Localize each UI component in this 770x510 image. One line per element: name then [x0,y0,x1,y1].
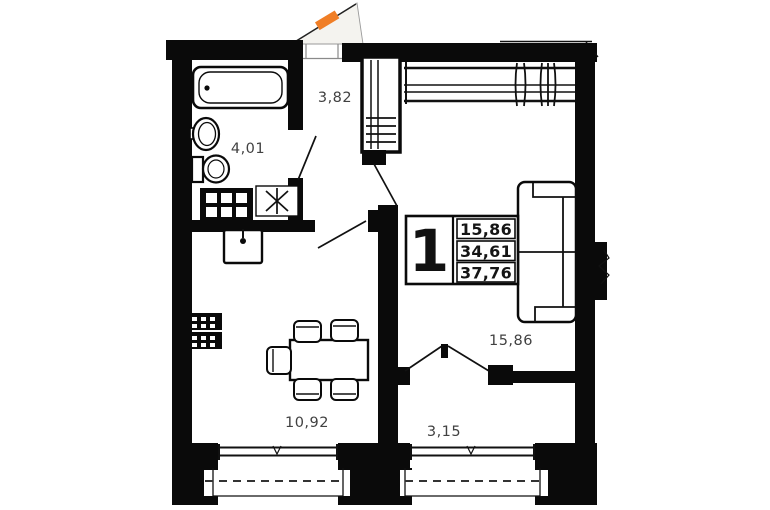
wall-bathroom-right [288,57,303,130]
label-bathroom-area: 4,01 [231,141,265,157]
wall-right [575,43,595,470]
door-bathroom [298,136,316,180]
kitchen-sink [224,229,262,263]
wall-left [172,43,192,470]
unit-info-box: 1 15,86 34,61 37,76 [406,216,518,285]
window-top [404,62,575,106]
sofa [518,182,576,322]
unit-number: 1 [409,217,449,285]
info-apartment-area: 34,61 [460,242,512,261]
entrance-door-swing [292,3,363,44]
exterior-piers [172,468,597,505]
floor-plan-drawing: 4,01 3,82 10,92 15,86 3,15 1 15,86 34,61… [0,0,770,510]
label-living-room-area: 15,86 [489,333,533,349]
window-bottom-kitchen [213,444,343,496]
floor-plan: 4,01 3,82 10,92 15,86 3,15 1 15,86 34,61… [0,0,770,510]
entrance-threshold [303,44,342,59]
door-kitchen [318,221,366,248]
bathtub [193,67,288,108]
label-hallway-area: 3,82 [318,90,352,106]
info-living-area: 15,86 [460,220,512,239]
wall-living-loggia [513,371,575,383]
window-bottom-loggia [405,444,540,496]
ventilation-shaft-icon [256,186,298,216]
radiator-kitchen [187,313,222,349]
wall-bottom [172,443,218,468]
toilet [192,156,229,183]
info-total-area: 37,76 [460,264,512,283]
dining-table [290,340,368,380]
label-loggia-area: 3,15 [427,424,461,440]
door-loggia-double [405,344,489,371]
washing-machine [200,188,253,222]
bathroom-sink [190,118,219,150]
label-kitchen-area: 10,92 [285,415,329,431]
wardrobe [362,57,400,165]
wall-kitchen-living [378,205,398,443]
door-living-room [374,164,397,206]
